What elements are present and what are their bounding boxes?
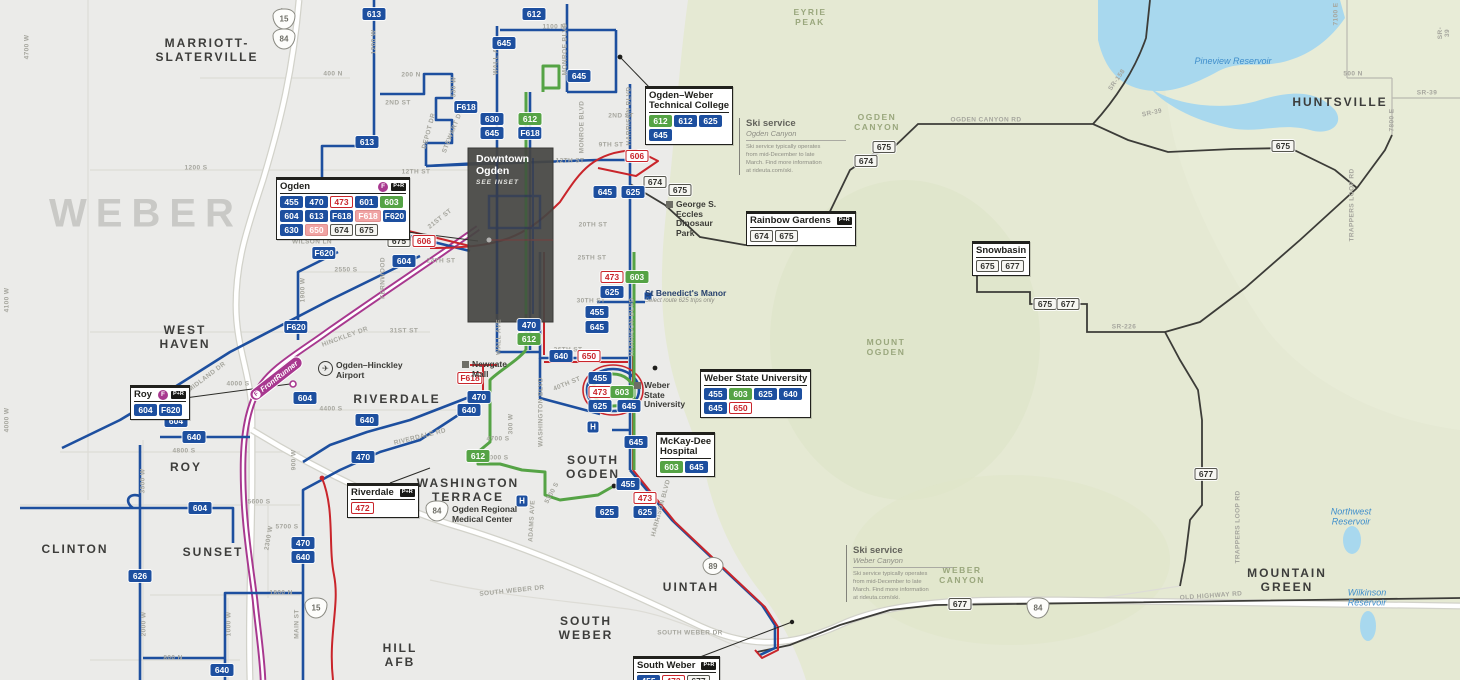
route-badge-455: 455 [280,196,303,208]
poi-medcenter: Ogden Regional Medical Center [452,505,517,524]
route-badge-650: 650 [305,224,328,236]
route-badge-630: 630 [481,113,504,125]
transit-map: Downtown Ogden SEE INSET MARRIOTT- SLATE… [0,0,1460,680]
route-badge-612: 612 [674,115,697,127]
route-badge-470: 470 [468,391,491,403]
route-badge-604: 604 [189,502,212,514]
route-badge-674: 674 [750,230,773,242]
route-badge-455: 455 [617,478,640,490]
poi-label: Ogden Regional Medical Center [452,505,517,524]
route-badge-645: 645 [493,37,516,49]
route-badge-F620: F620 [284,321,307,333]
frontrunner-station-dot [290,381,296,387]
route-badge-640: 640 [183,431,206,443]
ski-note-canyon: Weber Canyon [853,556,953,568]
route-badge-675: 675 [775,230,798,242]
downtown-inset-title: Downtown Ogden [468,148,553,177]
route-badge-630: 630 [280,224,303,236]
poi-label: George S. Eccles Dinosaur Park [676,200,716,238]
route-badge-470: 470 [352,451,375,463]
callout-title: McKay-Dee Hospital [660,437,711,457]
ski-note-canyon: Ogden Canyon [746,129,846,141]
route-badge-675: 675 [1034,298,1057,310]
callout-title: Roy [134,390,152,400]
route-badge-677: 677 [1057,298,1080,310]
ski-note-body: Ski service typically operates from mid-… [853,570,933,602]
callout-box-mckay-dee: McKay-Dee Hospital603645 [656,432,715,477]
callout-title: Rainbow Gardens [750,216,831,226]
route-badge-F620: F620 [312,247,335,259]
callout-box-snowbasin: Snowbasin675677 [972,241,1030,276]
route-badge-470: 470 [518,319,541,331]
ski-note-title: Ski service [746,118,846,129]
route-badge-625: 625 [589,400,612,412]
route-badge-625: 625 [699,115,722,127]
callout-title: Ogden [280,182,310,192]
route-badge-613: 613 [305,210,328,222]
route-badge-626: 626 [129,570,152,582]
poi-manor: St Benedict's ManorSelect route 625 trip… [645,288,726,304]
route-badge-455: 455 [586,306,609,318]
route-badge-F618: F618 [454,101,477,113]
ski-note-body: Ski service typically operates from mid-… [746,143,826,175]
callout-title: South Weber [637,661,695,671]
mall-icon [462,361,469,368]
downtown-inset-note: SEE INSET [468,177,553,186]
poi-airport: ✈Ogden–Hinckley Airport [318,361,403,380]
frontrunner-icon: F [158,390,168,400]
callout-box-rainbow-gardens: Rainbow GardensP+R674675 [746,211,856,246]
route-badge-603: 603 [380,196,403,208]
route-badge-675: 675 [669,184,692,196]
route-badge-613: 613 [356,136,379,148]
poi-dino: George S. Eccles Dinosaur Park [666,200,716,238]
route-badge-640: 640 [779,388,802,400]
route-badge-472: 472 [351,502,374,514]
route-badge-640: 640 [292,551,315,563]
park-and-ride-icon: P+R [391,183,406,191]
ski-service-note: Ski serviceOgden CanyonSki service typic… [739,118,846,175]
route-badge-650: 650 [729,402,752,414]
route-badge-675: 675 [1272,140,1295,152]
route-badge-473: 473 [601,271,624,283]
route-badge-612: 612 [467,450,490,462]
route-badge-603: 603 [660,461,683,473]
route-badge-603: 603 [626,271,649,283]
route-badge-606: 606 [626,150,649,162]
hospital-icon: H [588,422,599,433]
route-badge-675: 675 [873,141,896,153]
northwest-reservoir [1343,526,1361,554]
route-badge-604: 604 [294,392,317,404]
route-badge-603: 603 [729,388,752,400]
route-badge-473: 473 [589,386,612,398]
route-badge-473: 473 [662,675,685,680]
park-and-ride-icon: P+R [171,391,186,399]
route-badge-603: 603 [611,386,634,398]
route-badge-674: 674 [330,224,353,236]
route-badge-625: 625 [601,286,624,298]
poi-label: Newgate Mall [472,360,507,379]
route-badge-674: 674 [855,155,878,167]
callout-title: Weber State University [704,374,807,384]
route-badge-640: 640 [550,350,573,362]
route-badge-455: 455 [704,388,727,400]
wilkinson-reservoir [1360,611,1376,641]
route-badge-675: 675 [976,260,999,272]
poi-label: Ogden–Hinckley Airport [336,361,403,380]
callout-box-riverdale: RiverdaleP+R472 [347,483,419,518]
route-badge-601: 601 [355,196,378,208]
poi-mall: Newgate Mall [462,360,507,379]
route-badge-455: 455 [589,372,612,384]
callout-box-ogden: OgdenFP+R455470473601603604613F618F618F6… [276,177,410,240]
route-badge-640: 640 [211,664,234,676]
park-and-ride-icon: P+R [837,217,852,225]
route-badge-604: 604 [280,210,303,222]
route-badge-F618: F618 [330,210,353,222]
campus-icon [634,382,641,389]
callout-box-owtc: Ogden–Weber Technical College61261262564… [645,86,733,145]
route-badge-625: 625 [754,388,777,400]
route-badge-455: 455 [637,675,660,680]
route-badge-625: 625 [622,186,645,198]
route-badge-677: 677 [1195,468,1218,480]
route-badge-612: 612 [649,115,672,127]
route-badge-613: 613 [363,8,386,20]
route-badge-606: 606 [413,235,436,247]
dino-icon [666,201,673,208]
route-badge-677: 677 [1001,260,1024,272]
route-badge-645: 645 [568,70,591,82]
callout-box-south-weber: South WeberP+R455473677 [633,656,720,680]
callout-title: Snowbasin [976,246,1026,256]
route-badge-645: 645 [685,461,708,473]
poi-campus: Weber State University [634,381,685,410]
route-badge-645: 645 [649,129,672,141]
route-badge-675: 675 [355,224,378,236]
poi-label: St Benedict's Manor [645,288,726,298]
route-badge-604: 604 [134,404,157,416]
airport-icon: ✈ [318,361,333,376]
route-badge-645: 645 [594,186,617,198]
route-badge-F620: F620 [159,404,182,416]
route-badge-677: 677 [687,675,710,680]
hospital-icon: H [517,496,528,507]
downtown-inset-label: Downtown Ogden SEE INSET [468,148,553,208]
route-badge-612: 612 [519,113,542,125]
route-badge-674: 674 [644,176,667,188]
route-badge-645: 645 [625,436,648,448]
route-badge-650: 650 [578,350,601,362]
ski-service-note: Ski serviceWeber CanyonSki service typic… [846,545,953,602]
route-badge-625: 625 [596,506,619,518]
ski-note-title: Ski service [853,545,953,556]
callout-title: Riverdale [351,488,394,498]
route-badge-645: 645 [704,402,727,414]
callout-box-roy: RoyFP+R604F620 [130,385,190,420]
poi-sublabel: Select route 625 trips only [645,298,726,304]
route-badge-470: 470 [292,537,315,549]
route-badge-470: 470 [305,196,328,208]
route-badge-645: 645 [586,321,609,333]
route-badge-640: 640 [356,414,379,426]
route-badge-F618: F618 [518,127,541,139]
callout-box-wsu: Weber State University455603625640645650 [700,369,811,418]
route-badge-625: 625 [634,506,657,518]
route-badge-640: 640 [458,404,481,416]
park-and-ride-icon: P+R [701,662,716,670]
route-badge-645: 645 [481,127,504,139]
route-badge-F618: F618 [355,210,380,222]
poi-label: Weber State University [644,381,685,410]
frontrunner-icon: F [378,182,388,192]
route-badge-473: 473 [330,196,353,208]
callout-title: Ogden–Weber Technical College [649,91,729,111]
route-badge-473: 473 [634,492,657,504]
route-badge-612: 612 [518,333,541,345]
route-badge-F620: F620 [383,210,406,222]
route-badge-612: 612 [523,8,546,20]
park-and-ride-icon: P+R [400,489,415,497]
route-badge-604: 604 [393,255,416,267]
